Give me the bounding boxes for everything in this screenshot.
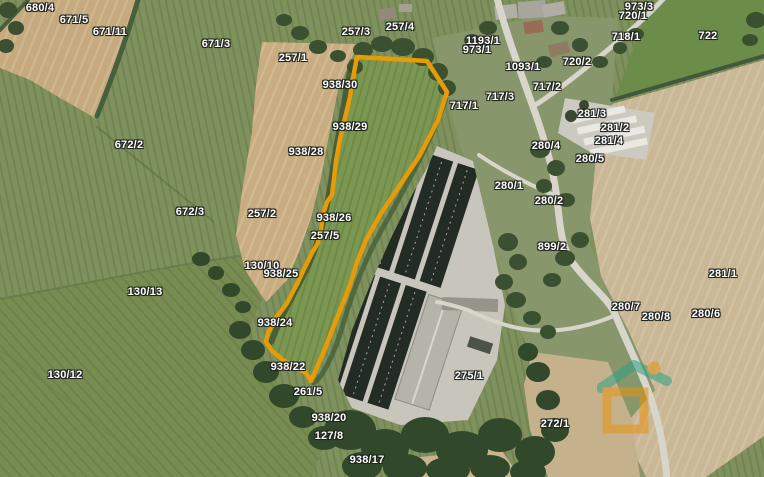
logo-dot: [648, 362, 661, 375]
aerial-map[interactable]: 680/4671/5671/11671/3257/3257/4257/1938/…: [0, 0, 764, 477]
logo-body: [607, 392, 644, 429]
house-logo-watermark: [597, 356, 673, 434]
